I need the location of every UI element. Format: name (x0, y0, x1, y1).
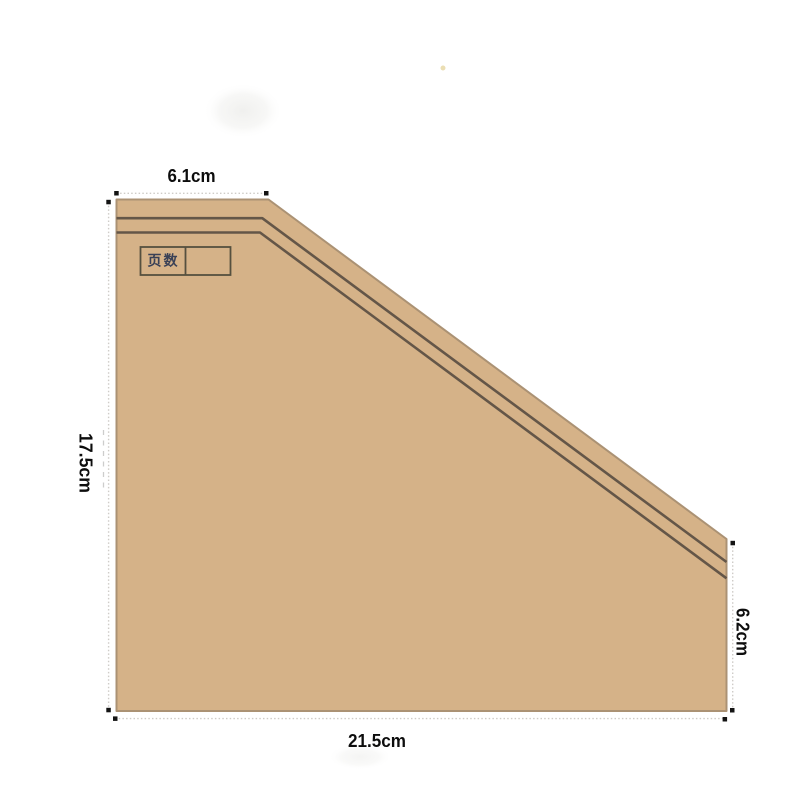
svg-text:21.5cm: 21.5cm (348, 730, 406, 751)
svg-text:6.1cm: 6.1cm (168, 165, 216, 186)
svg-text:6.2cm: 6.2cm (733, 608, 754, 656)
svg-text:17.5cm: 17.5cm (76, 433, 97, 493)
svg-text:页数: 页数 (148, 253, 180, 269)
